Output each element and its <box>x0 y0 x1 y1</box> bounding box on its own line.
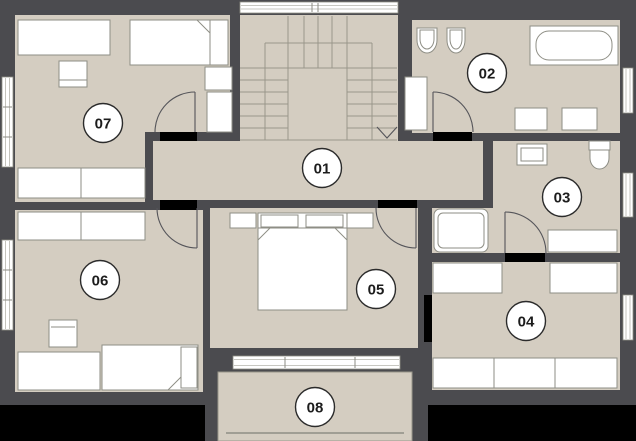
room-number: 06 <box>92 272 109 289</box>
window-right-room-04 <box>623 295 633 340</box>
room-number: 01 <box>314 160 331 177</box>
sink-icon <box>517 144 547 165</box>
room-label-07: 07 <box>84 104 123 143</box>
pillow-icon <box>181 347 197 388</box>
floor-plan: 01 02 03 04 05 06 07 08 <box>0 0 636 441</box>
door-opening-room-03 <box>505 253 545 262</box>
door-opening-room-05 <box>378 200 417 208</box>
toilet-icon <box>589 141 610 169</box>
sink-icon <box>417 28 437 53</box>
wardrobe-icon <box>18 212 145 240</box>
window-balcony-slider <box>233 356 400 369</box>
sink-icon <box>447 28 465 53</box>
outside-area-left <box>0 405 205 441</box>
room-label-05: 05 <box>357 270 396 309</box>
window-right-room-02 <box>623 68 633 113</box>
window-stairwell-top <box>240 2 398 13</box>
floor-plan-canvas: 01 02 03 04 05 06 07 08 <box>0 0 636 441</box>
outside-area-right <box>428 405 636 441</box>
window-right-room-03 <box>623 173 633 217</box>
room-label-04: 04 <box>507 302 546 341</box>
door-opening-room-06 <box>160 200 197 210</box>
room-label-02: 02 <box>468 54 507 93</box>
room-number: 02 <box>479 65 496 82</box>
pillow-icon <box>261 215 298 227</box>
passage-room-05-to-04 <box>424 295 432 342</box>
shower-icon <box>434 209 488 252</box>
wardrobe-icon <box>433 358 617 388</box>
stairwell-floor <box>240 15 398 141</box>
washer-icon <box>515 108 547 130</box>
desk-icon <box>550 263 617 293</box>
door-opening-room-07 <box>160 132 197 141</box>
room-number: 08 <box>307 399 324 416</box>
cabinet-icon <box>207 92 232 132</box>
desk-icon <box>433 263 502 293</box>
desk-icon <box>18 352 100 390</box>
nightstand-icon <box>230 213 256 228</box>
single-bed-icon <box>102 345 198 390</box>
single-bed-icon <box>130 20 228 65</box>
window-left-upper <box>2 77 13 167</box>
double-bed-icon <box>258 213 347 310</box>
nightstand-icon <box>347 213 373 228</box>
shelf-icon <box>548 230 617 252</box>
chair-icon <box>59 61 87 87</box>
chair-icon <box>49 320 77 347</box>
cabinet-icon <box>205 67 232 90</box>
room-number: 07 <box>95 115 112 132</box>
pillow-icon <box>306 215 343 227</box>
cabinet-icon <box>405 77 427 130</box>
room-number: 04 <box>518 313 535 330</box>
room-label-06: 06 <box>81 261 120 300</box>
dresser-icon <box>18 168 145 198</box>
washer-icon <box>562 108 597 130</box>
bathtub-icon <box>530 26 618 65</box>
window-left-lower <box>2 240 13 330</box>
room-label-03: 03 <box>543 178 582 217</box>
room-label-08: 08 <box>296 388 335 427</box>
room-label-01: 01 <box>303 149 342 188</box>
door-opening-room-02 <box>433 132 472 141</box>
room-number: 03 <box>554 189 571 206</box>
room-number: 05 <box>368 281 385 298</box>
desk-icon <box>18 20 110 55</box>
